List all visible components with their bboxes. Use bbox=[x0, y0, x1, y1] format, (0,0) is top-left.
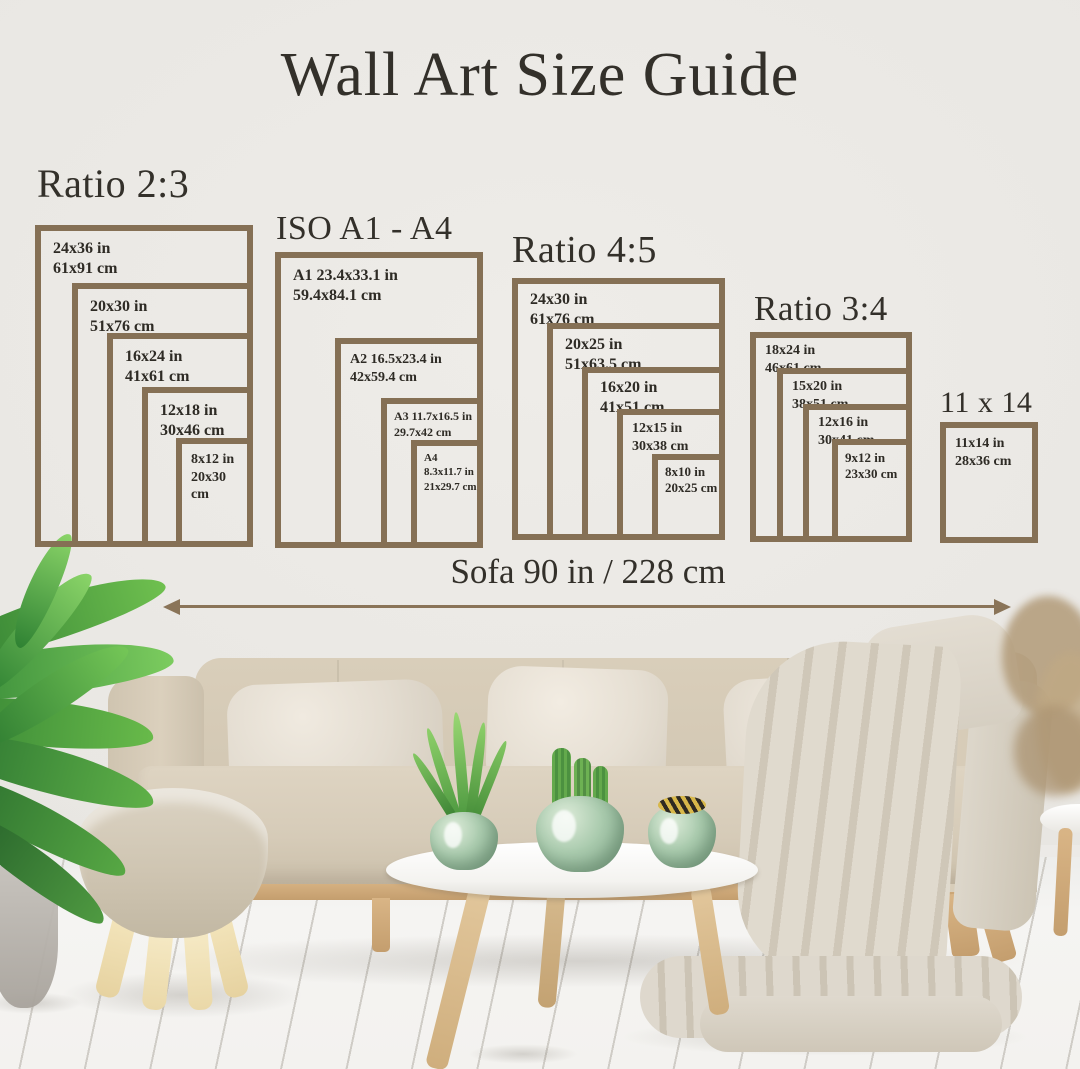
frame-size-label: A4 8.3x11.7 in21x29.7 cm bbox=[424, 451, 477, 494]
sofa-leg bbox=[372, 898, 390, 952]
frame-11x14: 11x14 in28x36 cm bbox=[940, 422, 1038, 543]
group-heading-11x14: 11 x 14 bbox=[940, 386, 1032, 420]
frame-stack-iso: A1 23.4x33.1 in59.4x84.1 cm A2 16.5x23.4… bbox=[275, 252, 483, 548]
group-heading-iso-a1-a4: ISO A1 - A4 bbox=[276, 210, 452, 248]
frame-size-label: 8x12 in20x30 cm bbox=[191, 451, 247, 504]
table-leg-shadow bbox=[468, 1044, 578, 1064]
frame-size-label: A1 23.4x33.1 in59.4x84.1 cm bbox=[293, 266, 477, 306]
group-heading-ratio-4-5: Ratio 4:5 bbox=[512, 228, 657, 272]
frame-size-label: 11x14 in28x36 cm bbox=[955, 435, 1032, 470]
frame-a4: A4 8.3x11.7 in21x29.7 cm bbox=[411, 440, 483, 548]
frame-9x12: 9x12 in23x30 cm bbox=[832, 439, 912, 542]
frame-stack-ratio-4-5: 24x30 in61x76 cm 20x25 in51x63.5 cm 16x2… bbox=[512, 278, 725, 540]
frame-8x10: 8x10 in20x25 cm bbox=[652, 454, 725, 540]
group-heading-ratio-3-4: Ratio 3:4 bbox=[754, 289, 888, 329]
frame-size-label: 16x24 in41x61 cm bbox=[125, 347, 247, 387]
frame-size-label: 12x18 in30x46 cm bbox=[160, 401, 247, 441]
frame-stack-ratio-2-3: 24x36 in61x91 cm 20x30 in51x76 cm 16x24 … bbox=[35, 225, 253, 547]
vase-highlight bbox=[444, 822, 462, 848]
aloe-vase bbox=[430, 812, 498, 870]
frame-size-label: 8x10 in20x25 cm bbox=[665, 464, 719, 497]
vase-highlight-2 bbox=[552, 810, 576, 842]
frame-size-label: 9x12 in23x30 cm bbox=[845, 450, 906, 483]
frame-size-label: A3 11.7x16.5 in29.7x42 cm bbox=[394, 409, 477, 440]
frame-size-label: 20x30 in51x76 cm bbox=[90, 297, 247, 337]
vase-highlight-3 bbox=[660, 818, 678, 844]
frame-size-label: 12x15 in30x38 cm bbox=[632, 420, 719, 455]
frame-8x12: 8x12 in20x30 cm bbox=[176, 438, 253, 547]
group-heading-ratio-2-3: Ratio 2:3 bbox=[37, 160, 189, 207]
blanket-main-drape bbox=[733, 637, 962, 984]
frame-size-label: A2 16.5x23.4 in42x59.4 cm bbox=[350, 351, 477, 386]
sofa-width-label: Sofa 90 in / 228 cm bbox=[114, 552, 1062, 592]
frame-stack-11x14: 11x14 in28x36 cm bbox=[940, 422, 1038, 543]
page-title: Wall Art Size Guide bbox=[0, 40, 1080, 111]
cactus-vase bbox=[536, 796, 624, 872]
sofa-width-arrow bbox=[163, 599, 1011, 615]
striped-vase-lid bbox=[658, 796, 706, 814]
blanket-floor-pile-2 bbox=[700, 996, 1002, 1052]
arrow-line bbox=[169, 605, 1005, 608]
wall-art-size-guide-poster: Wall Art Size Guide Ratio 2:3 24x36 in61… bbox=[0, 0, 1080, 1069]
arrowhead-right-icon bbox=[994, 599, 1011, 615]
frame-stack-ratio-3-4: 18x24 in46x61 cm 15x20 in38x51 cm 12x16 … bbox=[750, 332, 912, 542]
frame-size-label: 24x36 in61x91 cm bbox=[53, 239, 247, 279]
